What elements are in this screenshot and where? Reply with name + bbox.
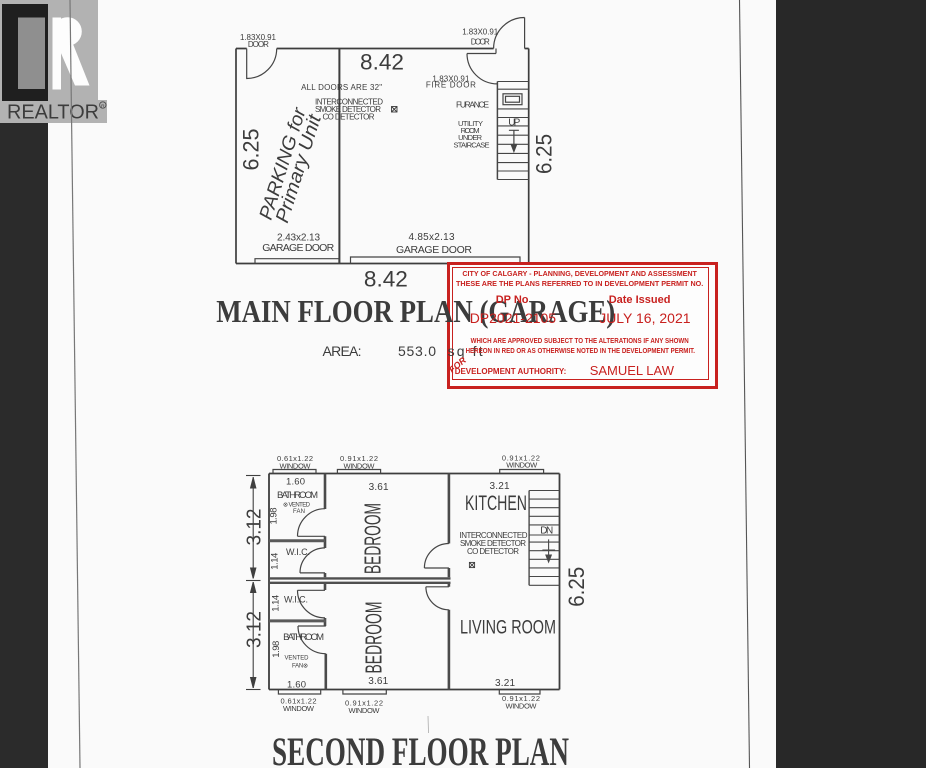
svg-text:AREA:: AREA: — [323, 343, 362, 359]
svg-text:SECOND FLOOR PLAN: SECOND FLOOR PLAN — [272, 729, 569, 768]
svg-text:553.0: 553.0 — [398, 343, 436, 359]
